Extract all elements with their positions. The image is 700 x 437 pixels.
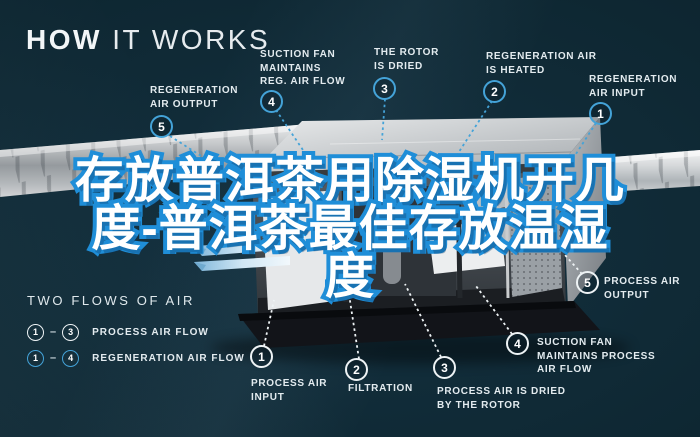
step-badge-regeneration-5: 5 — [150, 115, 173, 138]
step-badge-regeneration-1: 1 — [589, 102, 612, 125]
label-process-air-input: PROCESS AIR INPUT — [251, 377, 327, 404]
legend-process-label: PROCESS AIR FLOW — [92, 327, 209, 338]
label-regeneration-air-input: REGENERATION AIR INPUT — [589, 73, 677, 100]
overlay-title-line2: 度-普洱茶最佳存放温湿 — [0, 205, 700, 253]
label-suction-fan-process: SUCTION FAN MAINTAINS PROCESS AIR FLOW — [537, 336, 655, 377]
infographic: 存放普洱茶用除湿机开几 度-普洱茶最佳存放温湿 度 HOW IT WORKS R… — [0, 0, 700, 437]
label-rotor-is-dried: THE ROTOR IS DRIED — [374, 46, 439, 73]
step-badge-process-2: 2 — [345, 358, 368, 381]
page-title-bold: HOW — [26, 24, 102, 55]
page-title-light: IT WORKS — [112, 24, 270, 55]
label-filtration: FILTRATION — [348, 382, 413, 396]
overlay-title-line1: 存放普洱茶用除湿机开几 — [0, 157, 700, 205]
overlay-title: 存放普洱茶用除湿机开几 度-普洱茶最佳存放温湿 度 — [0, 157, 700, 301]
step-badge-regeneration-3: 3 — [373, 77, 396, 100]
overlay-title-line3: 度 — [0, 253, 700, 301]
legend-regeneration-dash: – — [50, 352, 56, 364]
legend-process-from-badge: 1 — [27, 324, 44, 341]
label-regeneration-air-heated: REGENERATION AIR IS HEATED — [486, 50, 597, 77]
page-title: HOW IT WORKS — [26, 24, 270, 56]
step-badge-regeneration-4: 4 — [260, 90, 283, 113]
label-regeneration-air-output: REGENERATION AIR OUTPUT — [150, 84, 238, 111]
step-badge-process-4: 4 — [506, 332, 529, 355]
label-suction-fan-reg: SUCTION FAN MAINTAINS REG. AIR FLOW — [260, 48, 345, 89]
legend-regeneration-to-badge: 4 — [62, 350, 79, 367]
legend-row-process: 1 – 3 PROCESS AIR FLOW — [27, 323, 209, 341]
step-badge-process-3: 3 — [433, 356, 456, 379]
legend-row-regeneration: 1 – 4 REGENERATION AIR FLOW — [27, 349, 245, 367]
step-badge-regeneration-2: 2 — [483, 80, 506, 103]
step-badge-process-1: 1 — [250, 345, 273, 368]
legend-process-dash: – — [50, 326, 56, 338]
legend-regeneration-label: REGENERATION AIR FLOW — [92, 353, 245, 364]
legend-regeneration-from-badge: 1 — [27, 350, 44, 367]
label-process-air-dried: PROCESS AIR IS DRIED BY THE ROTOR — [437, 385, 566, 412]
legend-process-to-badge: 3 — [62, 324, 79, 341]
